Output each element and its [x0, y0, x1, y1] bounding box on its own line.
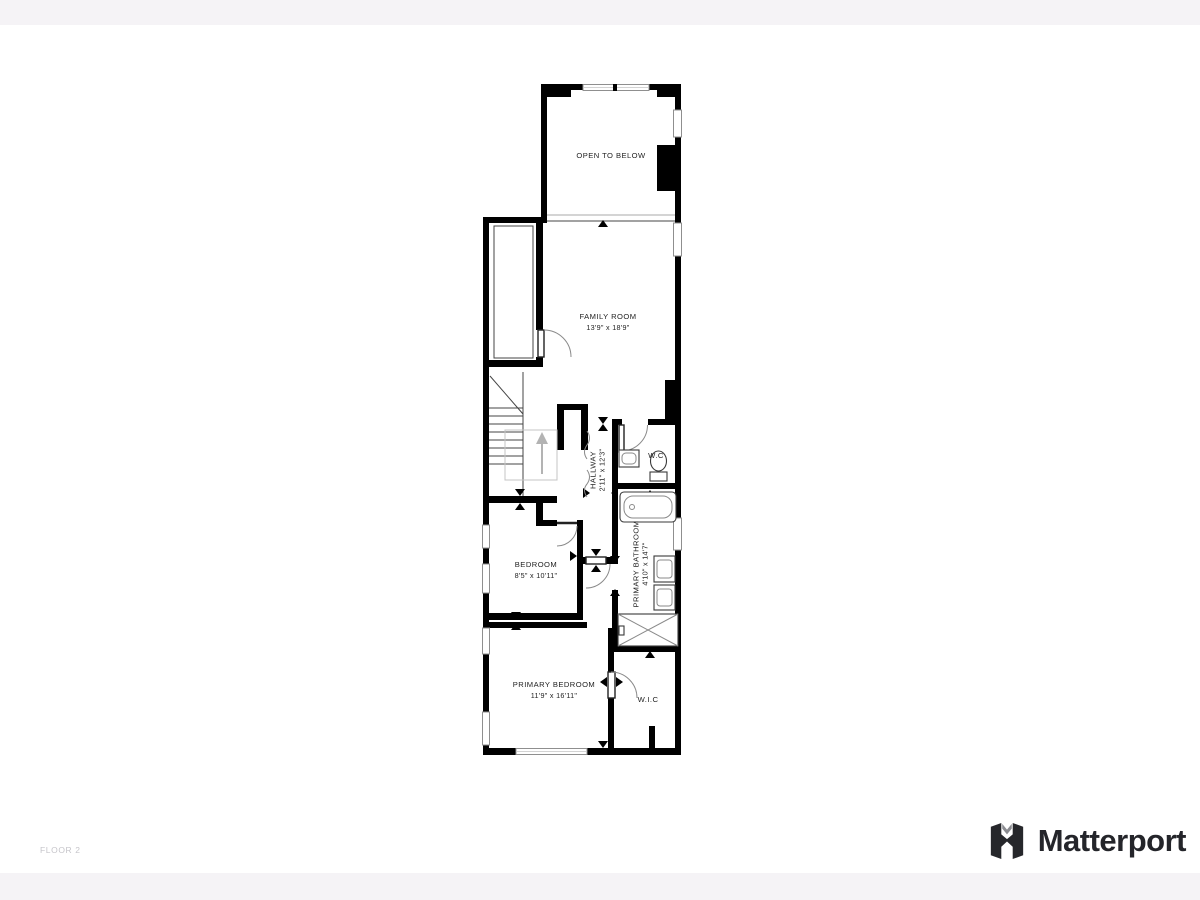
open-to-below-edge: [547, 215, 675, 227]
floor-label: FLOOR 2: [40, 845, 81, 855]
hallway-label: HALLWAY: [589, 451, 598, 489]
wc-door: [619, 425, 624, 452]
bedroom-label: BEDROOM: [515, 560, 557, 569]
hallway-dims: 2'11" x 12'3": [598, 448, 607, 491]
primary-bathroom-dims: 4'10" x 14'7": [641, 542, 650, 585]
primary-suite-door: [586, 557, 606, 564]
bedroom-dims: 8'5" x 10'11": [515, 571, 558, 580]
family-room-dims: 13'9" x 18'9": [586, 323, 629, 332]
family-room-door: [538, 330, 544, 357]
floorplan: OPEN TO BELOW FAMILY ROOM 13'9" x 18'9" …: [0, 0, 1200, 900]
family-room-label: FAMILY ROOM: [580, 312, 637, 321]
wc-label: W.C: [648, 451, 664, 460]
page: OPEN TO BELOW FAMILY ROOM 13'9" x 18'9" …: [0, 0, 1200, 900]
wc-toilet: [650, 472, 667, 481]
primary-bedroom-dims: 11'9" x 16'11": [531, 691, 578, 700]
matterport-logo: Matterport: [988, 819, 1186, 863]
matterport-wordmark: Matterport: [1038, 823, 1186, 859]
primary-bedroom-label: PRIMARY BEDROOM: [513, 680, 595, 689]
shower-valve: [619, 626, 624, 635]
open-to-below-label: OPEN TO BELOW: [576, 151, 646, 160]
stairs: [489, 226, 557, 510]
wic-door: [608, 672, 615, 698]
matterport-logo-icon: [988, 822, 1026, 860]
wic-label: W.I.C: [638, 695, 659, 704]
primary-bathroom-label: PRIMARY BATHROOM: [632, 521, 641, 608]
